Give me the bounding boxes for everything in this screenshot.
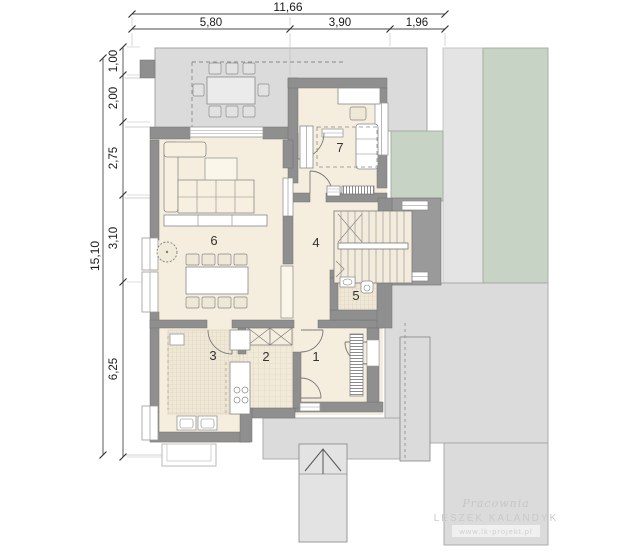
dim-label-left-total: 15,10 [88, 241, 102, 271]
room-label-7: 7 [336, 140, 343, 155]
sofa-room7 [356, 124, 378, 169]
desk-chair [350, 107, 366, 120]
entrance-walkway [400, 337, 430, 461]
room-label-1: 1 [312, 349, 319, 364]
kitchen-cabinet-top [230, 330, 250, 350]
window-left-2 [142, 272, 158, 312]
room-label-4: 4 [312, 235, 319, 250]
room-label-2: 2 [262, 349, 269, 364]
entrance-door-opening [367, 340, 379, 366]
window-hall-glazing [322, 129, 343, 137]
wall-kitchen-bottom [150, 432, 250, 442]
room-label-5: 5 [352, 288, 359, 303]
dim-label-top-seg1: 5,80 [200, 17, 222, 29]
dining-table [186, 267, 248, 294]
lawn-area [483, 48, 548, 283]
entrance-arrow-marker [299, 444, 347, 542]
wall-room1-divider [293, 352, 301, 408]
desk [338, 88, 380, 104]
wall-hall-pier [283, 140, 293, 168]
radiator-room1 [350, 334, 363, 396]
watermark-studio-name: LESZEK KALANDYK [434, 513, 558, 524]
room-label-3: 3 [209, 348, 216, 363]
kitchen-appliance [170, 334, 184, 345]
sliding-door-pocket [283, 178, 293, 216]
wall-hall2-bottom [252, 408, 295, 418]
wall-top-left-pillar [140, 60, 155, 78]
dim-label-left-seg3: 2,75 [108, 147, 120, 169]
dim-label-left-seg4: 3,10 [108, 227, 120, 249]
rear-steps [162, 444, 216, 466]
wall-room7-top [288, 78, 387, 88]
dim-label-left-seg5: 6,25 [108, 358, 120, 380]
watermark-script-line: Pracownia [461, 497, 530, 510]
builtin-cabinet [281, 266, 293, 318]
wall-living-top-right [263, 127, 290, 139]
wall-mid-row-center [232, 320, 294, 328]
dim-label-top-seg3: 1,96 [406, 17, 428, 29]
wall-wc-bottom [330, 310, 383, 320]
terrace-table [207, 77, 255, 104]
stair-handrail [338, 243, 408, 249]
window-left-1 [142, 238, 158, 270]
washbasin [340, 277, 355, 287]
dim-label-left-seg1: 1,00 [108, 50, 120, 72]
radiator-room7 [342, 186, 374, 194]
window-room1-bottom [300, 403, 320, 411]
window-terrace-glazing [190, 127, 263, 137]
dim-label-top-total: 11,66 [273, 0, 302, 14]
wardrobe-room2 [248, 328, 292, 345]
sofa-armrest [164, 142, 206, 157]
window-left-3 [142, 406, 158, 440]
wall-living-top-left [150, 127, 190, 139]
side-path-paving [443, 48, 483, 283]
wall-mid-row-left [150, 320, 207, 328]
plant-center [166, 251, 168, 253]
wall-hall-divider [283, 216, 293, 264]
staircase [334, 211, 412, 283]
dim-label-top-seg2: 3,90 [329, 17, 351, 29]
sideboard [164, 215, 267, 226]
wall-mid-row-right [318, 320, 383, 328]
room-label-6: 6 [210, 233, 217, 248]
basement-window-1 [402, 201, 428, 210]
lawn-patch [391, 131, 443, 201]
coffee-table [205, 158, 237, 180]
fireplace-box [327, 186, 340, 196]
floor-plan-canvas: 1 2 3 4 5 6 7 11,66 5,80 3,90 1,96 15,10… [0, 0, 638, 556]
floor-plan-page: 1 2 3 4 5 6 7 11,66 5,80 3,90 1,96 15,10… [0, 0, 638, 556]
watermark-website: www.lk-projekt.pl [458, 527, 532, 536]
wall-right-connector [377, 283, 392, 328]
dim-label-left-seg2: 2,00 [108, 87, 120, 109]
wall-left-upper [150, 140, 159, 240]
